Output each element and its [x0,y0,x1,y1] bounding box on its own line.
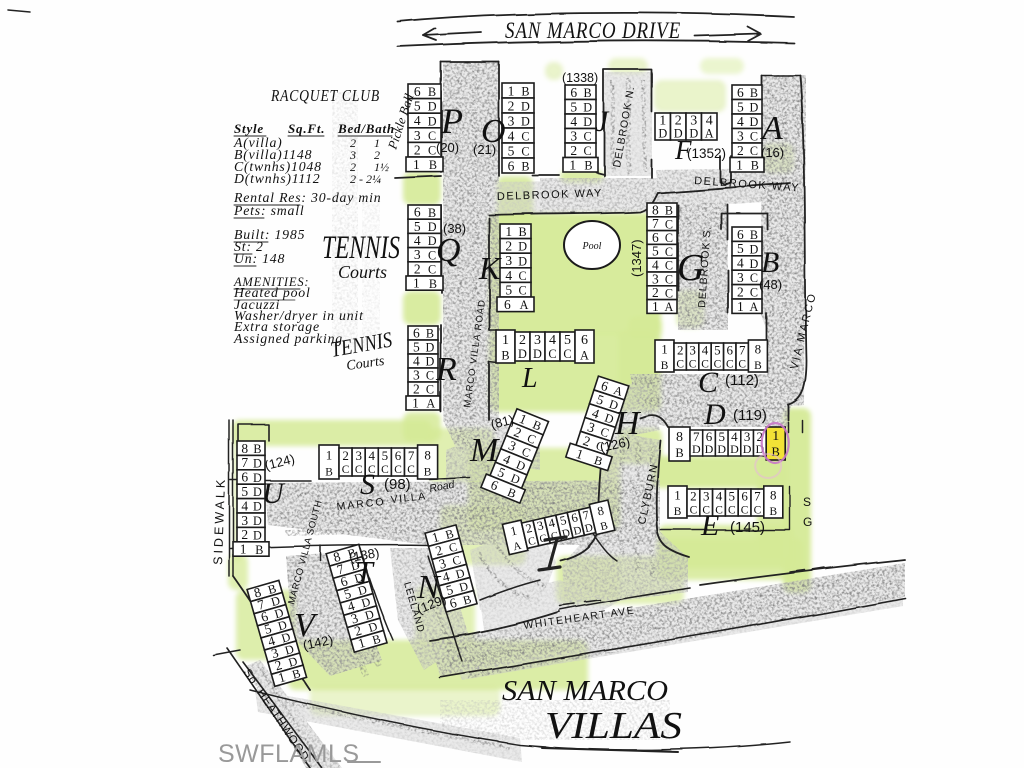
svg-text:C: C [428,129,436,143]
svg-text:8: 8 [755,341,762,356]
svg-text:3: 3 [413,368,420,383]
svg-text:C: C [741,504,749,516]
svg-text:6: 6 [241,470,248,485]
svg-text:1: 1 [736,157,743,172]
svg-text:5: 5 [241,484,248,499]
svg-text:D(twnhs)1112: D(twnhs)1112 [233,171,321,187]
svg-text:2: 2 [413,382,420,397]
svg-text:B: B [426,327,434,341]
svg-text:SAN MARCO DRIVE: SAN MARCO DRIVE [505,18,681,43]
svg-text:G: G [803,515,812,529]
svg-text:B: B [751,159,759,173]
svg-text:4: 4 [702,342,709,357]
svg-text:D: D [428,114,437,128]
svg-text:B: B [501,349,509,363]
svg-text:C: C [428,144,436,158]
svg-text:B: B [253,442,261,456]
svg-text:4: 4 [737,256,744,271]
svg-text:5: 5 [505,282,512,297]
svg-text:2: 2 [519,333,526,348]
svg-text:6: 6 [414,205,421,220]
svg-text:B: B [521,85,529,99]
svg-text:8: 8 [770,487,777,502]
svg-text:5: 5 [414,219,421,234]
svg-text:D: D [692,442,701,456]
svg-text:D: D [743,442,752,456]
svg-text:4: 4 [570,114,577,129]
svg-text:4: 4 [414,233,421,248]
svg-text:S: S [803,495,811,509]
svg-text:D: D [583,101,592,115]
svg-text:B: B [519,225,527,239]
svg-text:A: A [580,349,589,363]
svg-text:1: 1 [674,487,681,502]
svg-text:D: D [518,240,527,254]
svg-text:2: 2 [737,284,744,299]
svg-text:D: D [518,347,527,361]
svg-text:(119): (119) [733,407,767,424]
svg-text:(112): (112) [725,372,759,389]
svg-text:2: 2 [241,527,248,542]
svg-text:6: 6 [737,227,744,242]
svg-text:(1352): (1352) [687,146,726,161]
svg-text:D: D [253,471,262,485]
svg-text:6: 6 [508,158,515,173]
svg-text:C: C [426,369,434,383]
svg-text:B: B [429,277,437,291]
svg-text:T: T [355,554,375,590]
svg-text:5: 5 [413,340,420,355]
svg-text:C: C [698,366,719,399]
svg-text:7: 7 [408,448,415,463]
svg-text:B: B [754,360,762,372]
svg-text:C: C [521,129,529,143]
svg-text:D: D [518,254,527,268]
svg-text:C: C [728,504,736,516]
svg-text:1: 1 [652,299,659,314]
svg-text:6: 6 [570,85,577,100]
svg-text:8: 8 [241,441,248,456]
svg-text:5: 5 [508,143,515,158]
svg-text:D: D [705,442,714,456]
svg-text:C: C [665,259,673,273]
svg-text:D: D [253,514,262,528]
svg-text:(1338): (1338) [562,71,598,85]
svg-text:1: 1 [508,83,515,98]
svg-text:C: C [750,271,758,285]
svg-text:2: 2 [414,261,421,276]
svg-text:D: D [717,442,726,456]
svg-text:4: 4 [716,488,723,503]
svg-text:Courts: Courts [338,262,387,282]
svg-text:8: 8 [652,202,659,217]
svg-text:3: 3 [703,488,710,503]
svg-text:C: C [519,269,527,283]
svg-text:B: B [750,228,758,242]
svg-text:C: C [726,358,734,370]
svg-text:6: 6 [581,333,588,348]
svg-text:3: 3 [355,448,362,463]
svg-text:7: 7 [739,342,746,357]
svg-text:Pool: Pool [582,241,602,252]
svg-text:C: C [521,144,529,158]
svg-text:R: R [435,351,457,388]
svg-text:C: C [665,286,673,300]
svg-text:VILLAS: VILLAS [545,705,682,747]
svg-text:C: C [519,284,527,298]
svg-text:D: D [749,115,758,129]
svg-text:7: 7 [652,216,659,231]
svg-text:C: C [407,464,415,476]
svg-text:6: 6 [737,85,744,100]
svg-text:D: D [730,442,739,456]
svg-text:C: C [342,464,350,476]
svg-text:(20): (20) [436,140,459,155]
svg-text:4: 4 [737,114,744,129]
svg-text:4: 4 [505,268,512,283]
svg-text:B: B [750,86,758,100]
svg-text:2: 2 [690,488,697,503]
svg-text:C: C [563,347,571,361]
svg-text:Sq.Ft.: Sq.Ft. [288,121,325,136]
svg-text:(48): (48) [759,277,782,292]
svg-text:C: C [394,464,402,476]
svg-text:2: 2 [677,342,684,357]
svg-text:C: C [548,347,556,361]
svg-text:B: B [521,159,529,173]
svg-text:D: D [521,100,530,114]
svg-text:5: 5 [564,333,571,348]
svg-text:3: 3 [534,333,541,348]
svg-text:TENNIS: TENNIS [322,230,400,266]
svg-text:D: D [428,100,437,114]
svg-text:A: A [705,126,714,140]
svg-text:3: 3 [652,271,659,286]
svg-text:3: 3 [737,128,744,143]
svg-text:2: 2 [652,285,659,300]
svg-text:2: 2 [508,98,515,113]
svg-text:B: B [665,204,673,218]
svg-text:B: B [584,159,592,173]
svg-text:Style: Style [234,121,264,136]
svg-text:A: A [426,397,435,411]
svg-text:C: C [754,504,762,516]
svg-text:1: 1 [505,224,512,239]
svg-text:SWFLAMLS: SWFLAMLS [218,740,360,768]
svg-text:K: K [478,250,502,286]
svg-text:5: 5 [714,342,721,357]
svg-text:B: B [255,543,263,557]
svg-text:C: C [689,358,697,370]
svg-text:C: C [428,263,436,277]
svg-text:1: 1 [502,333,509,348]
svg-text:B: B [661,360,669,372]
svg-text:8: 8 [424,447,431,462]
svg-text:B: B [675,446,683,460]
svg-text:1: 1 [413,157,420,172]
svg-text:3: 3 [414,247,421,262]
svg-text:C: C [676,358,684,370]
svg-text:A: A [520,298,529,312]
svg-text:3: 3 [508,113,515,128]
svg-text:1: 1 [772,429,779,444]
svg-text:D: D [749,242,758,256]
svg-text:B: B [428,85,436,99]
svg-text:C: C [665,217,673,231]
svg-text:6: 6 [413,326,420,341]
svg-text:S: S [360,468,375,501]
svg-text:1: 1 [661,341,668,356]
svg-text:SAN MARCO: SAN MARCO [502,676,668,707]
svg-text:7: 7 [241,455,248,470]
svg-text:C: C [750,130,758,144]
svg-text:6: 6 [727,342,734,357]
svg-text:(1347): (1347) [629,239,644,277]
svg-text:RACQUET CLUB: RACQUET CLUB [270,86,380,105]
svg-text:D: D [583,115,592,129]
svg-text:5: 5 [652,244,659,259]
svg-text:1: 1 [326,447,333,462]
svg-text:5: 5 [570,99,577,114]
svg-text:3: 3 [689,342,696,357]
svg-text:6: 6 [504,297,511,312]
svg-text:C: C [428,248,436,262]
svg-text:D: D [425,355,434,369]
svg-text:6: 6 [741,488,748,503]
svg-text:4: 4 [369,448,376,463]
svg-text:C: C [426,383,434,397]
svg-text:(16): (16) [761,145,784,160]
svg-text:1: 1 [412,396,419,411]
svg-text:U: U [262,477,286,510]
svg-text:D: D [703,398,726,431]
svg-text:B: B [325,467,333,479]
svg-text:D: D [658,126,667,140]
svg-text:B: B [761,246,779,279]
svg-text:C: C [738,358,746,370]
svg-text:5: 5 [737,99,744,114]
svg-text:Q: Q [436,232,461,269]
svg-text:7: 7 [754,488,761,503]
svg-text:C: C [690,504,698,516]
svg-text:D: D [521,115,530,129]
svg-text:2: 2 [505,239,512,254]
svg-text:3: 3 [505,253,512,268]
svg-text:Assigned parking: Assigned parking [233,331,343,346]
svg-text:C: C [750,286,758,300]
svg-text:J: J [595,105,610,138]
svg-text:C: C [665,231,673,245]
svg-text:B: B [584,86,592,100]
svg-text:5: 5 [382,448,389,463]
svg-text:L: L [521,363,538,394]
svg-text:D: D [749,257,758,271]
svg-text:4: 4 [413,354,420,369]
svg-text:4: 4 [549,333,556,348]
svg-text:3: 3 [570,128,577,143]
svg-text:6: 6 [395,448,402,463]
svg-text:E: E [700,509,719,542]
svg-text:D: D [253,528,262,542]
svg-text:(21): (21) [473,142,496,157]
svg-text:D: D [253,485,262,499]
svg-text:A: A [760,110,783,147]
svg-text:2: 2 [737,143,744,158]
svg-text:2: 2 [414,142,421,157]
svg-text:B: B [769,506,777,518]
svg-text:1: 1 [569,157,576,172]
svg-text:D: D [253,500,262,514]
svg-text:D: D [533,347,542,361]
svg-text:(145): (145) [730,519,765,536]
svg-text:5: 5 [729,488,736,503]
svg-text:D: D [253,456,262,470]
svg-text:4: 4 [414,113,421,128]
svg-text:B: B [428,206,436,220]
svg-text:1: 1 [413,276,420,291]
svg-text:(98): (98) [384,476,411,493]
svg-text:3: 3 [241,513,248,528]
svg-text:C: C [750,144,758,158]
svg-text:8: 8 [676,430,683,445]
svg-text:B: B [429,158,437,172]
svg-text:4: 4 [652,258,659,273]
svg-text:1: 1 [737,299,744,314]
svg-text:2 - 2¼: 2 - 2¼ [350,172,381,186]
svg-text:B: B [424,467,432,479]
svg-text:D: D [749,101,758,115]
svg-text:3: 3 [414,128,421,143]
svg-text:Pets: small: Pets: small [233,203,305,218]
svg-text:6: 6 [652,230,659,245]
svg-text:4: 4 [241,498,248,513]
svg-text:M: M [469,432,500,469]
svg-text:Bed/Bath: Bed/Bath [337,121,395,136]
svg-text:C: C [381,464,389,476]
svg-text:A: A [749,300,758,314]
svg-text:B: B [674,506,682,518]
svg-text:3: 3 [737,270,744,285]
svg-text:1: 1 [240,542,247,557]
svg-text:C: C [665,245,673,259]
svg-text:P: P [440,101,463,141]
svg-text:2: 2 [342,448,349,463]
svg-text:5: 5 [737,241,744,256]
svg-text:Un: 148: Un: 148 [234,251,285,266]
svg-text:C: C [584,130,592,144]
svg-text:D: D [425,341,434,355]
svg-text:C: C [665,273,673,287]
svg-text:2: 2 [570,143,577,158]
svg-text:4: 4 [508,128,515,143]
svg-text:A: A [664,300,673,314]
svg-text:C: C [584,144,592,158]
